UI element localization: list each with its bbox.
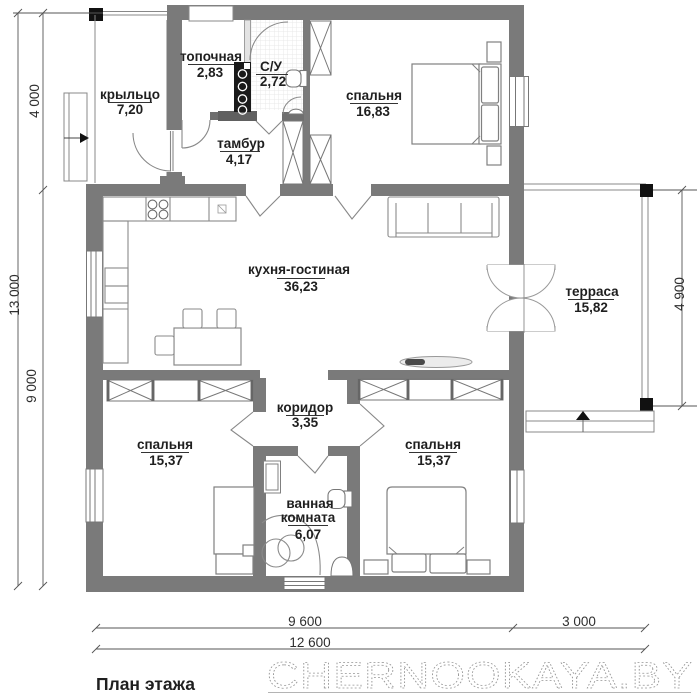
svg-text:6,07: 6,07 bbox=[295, 527, 321, 542]
svg-text:7,20: 7,20 bbox=[117, 102, 143, 117]
svg-text:ванная: ванная bbox=[286, 496, 333, 511]
svg-text:15,37: 15,37 bbox=[417, 453, 451, 468]
svg-text:9 600: 9 600 bbox=[288, 614, 322, 629]
svg-text:тамбур: тамбур bbox=[217, 136, 265, 151]
svg-text:3 000: 3 000 bbox=[562, 614, 596, 629]
svg-text:топочная: топочная bbox=[180, 49, 242, 64]
svg-text:4 000: 4 000 bbox=[27, 84, 42, 118]
svg-text:4 900: 4 900 bbox=[672, 277, 687, 311]
svg-text:3,35: 3,35 bbox=[292, 415, 319, 430]
svg-text:терраса: терраса bbox=[565, 284, 619, 299]
svg-text:спальня: спальня bbox=[405, 437, 461, 452]
svg-text:15,82: 15,82 bbox=[574, 300, 608, 315]
svg-text:коридор: коридор bbox=[277, 400, 333, 415]
svg-text:4,17: 4,17 bbox=[226, 152, 252, 167]
svg-text:2,83: 2,83 bbox=[197, 65, 224, 80]
svg-text:9 000: 9 000 bbox=[24, 369, 39, 403]
svg-text:13 000: 13 000 bbox=[7, 274, 22, 315]
svg-text:36,23: 36,23 bbox=[284, 279, 318, 294]
svg-text:кухня-гостиная: кухня-гостиная bbox=[248, 262, 350, 277]
svg-text:крыльцо: крыльцо bbox=[100, 87, 160, 102]
svg-text:12 600: 12 600 bbox=[289, 635, 330, 650]
svg-text:15,37: 15,37 bbox=[149, 453, 183, 468]
svg-text:План этажа: План этажа bbox=[96, 674, 195, 694]
svg-text:CHERNOOKAYA.BY: CHERNOOKAYA.BY bbox=[267, 655, 693, 696]
svg-text:16,83: 16,83 bbox=[356, 104, 390, 119]
svg-text:комната: комната bbox=[281, 510, 336, 525]
svg-text:С/У: С/У bbox=[260, 59, 283, 74]
svg-text:спальня: спальня bbox=[137, 437, 193, 452]
svg-text:спальня: спальня bbox=[346, 88, 402, 103]
svg-text:2,72: 2,72 bbox=[260, 74, 286, 89]
